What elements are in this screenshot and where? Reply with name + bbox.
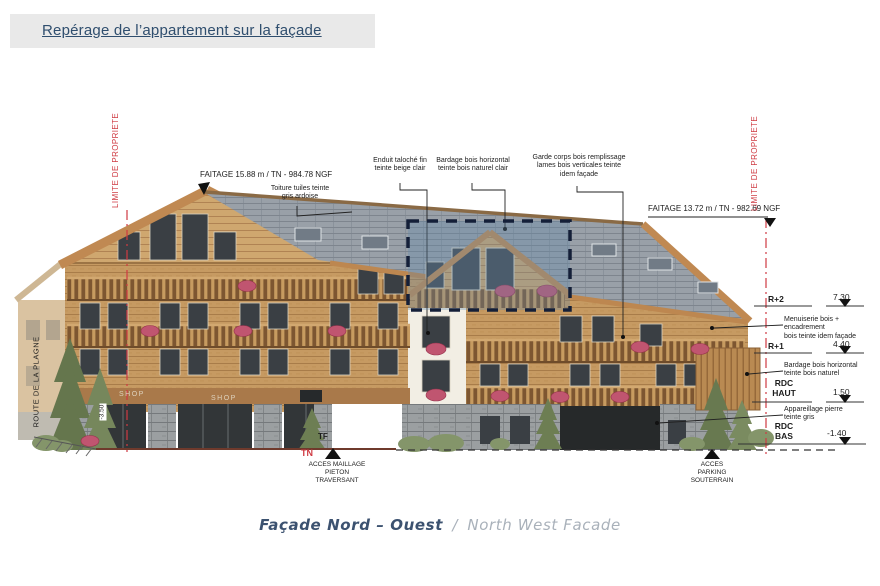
toiture-label: Toiture tuiles teinte gris ardoise (252, 185, 348, 202)
enduit-label: Enduit taloché fin teinte beige clair (362, 157, 438, 174)
limite-right-label: LIMITE DE PROPRIETE (751, 116, 759, 211)
tf-label: TF (318, 432, 328, 442)
elevation-drawing (0, 0, 880, 586)
shop-sign-1: SHOP (119, 391, 145, 399)
drawing-caption: Façade Nord – Ouest / North West Facade (0, 516, 880, 534)
route-label: ROUTE DE LA PLAGNE (33, 336, 41, 427)
level-minus-label: -3.50 (100, 404, 107, 421)
faitage-right-label: FAITAGE 13.72 m / TN - 982.69 NGF (648, 204, 780, 214)
shop-sign-2: SHOP (211, 395, 237, 403)
garde-corps-label: Garde corps bois remplissage lames bois … (524, 154, 634, 179)
limite-left-label: LIMITE DE PROPRIETE (112, 113, 120, 208)
menuiserie-label: Menuiserie bois + encadrement bois teint… (784, 316, 879, 341)
level-rdcbas-label: RDC BAS (762, 421, 806, 441)
level-rdchaut-value: 1.50 (833, 387, 850, 397)
level-r1-label: R+1 (768, 341, 784, 351)
tn-label: TN (301, 448, 313, 459)
level-rdchaut-label: RDC HAUT (762, 378, 806, 398)
page: Repérage de l’appartement sur la façade (0, 0, 880, 586)
wood-box (696, 348, 760, 410)
level-rdcbas-value: -1.40 (827, 428, 846, 438)
caption-separator: / (452, 516, 458, 534)
apartment-highlight-box (408, 221, 570, 310)
level-r2-value: 7.30 (833, 292, 850, 302)
acces-pieton-label: ACCES MAILLAGE PIETON TRAVERSANT (293, 461, 381, 484)
level-r2-label: R+2 (768, 294, 784, 304)
level-r1-value: 4.40 (833, 339, 850, 349)
bardage-naturel-label: Bardage bois horizontal teinte bois natu… (784, 362, 879, 379)
bardage-clair-label: Bardage bois horizontal teinte bois natu… (428, 157, 518, 174)
caption-french: Façade Nord – Ouest (259, 516, 443, 534)
faitage-left-label: FAITAGE 15.88 m / TN - 984.78 NGF (200, 170, 332, 180)
caption-english: North West Facade (467, 516, 620, 534)
acces-parking-label: ACCES PARKING SOUTERRAIN (672, 461, 752, 484)
